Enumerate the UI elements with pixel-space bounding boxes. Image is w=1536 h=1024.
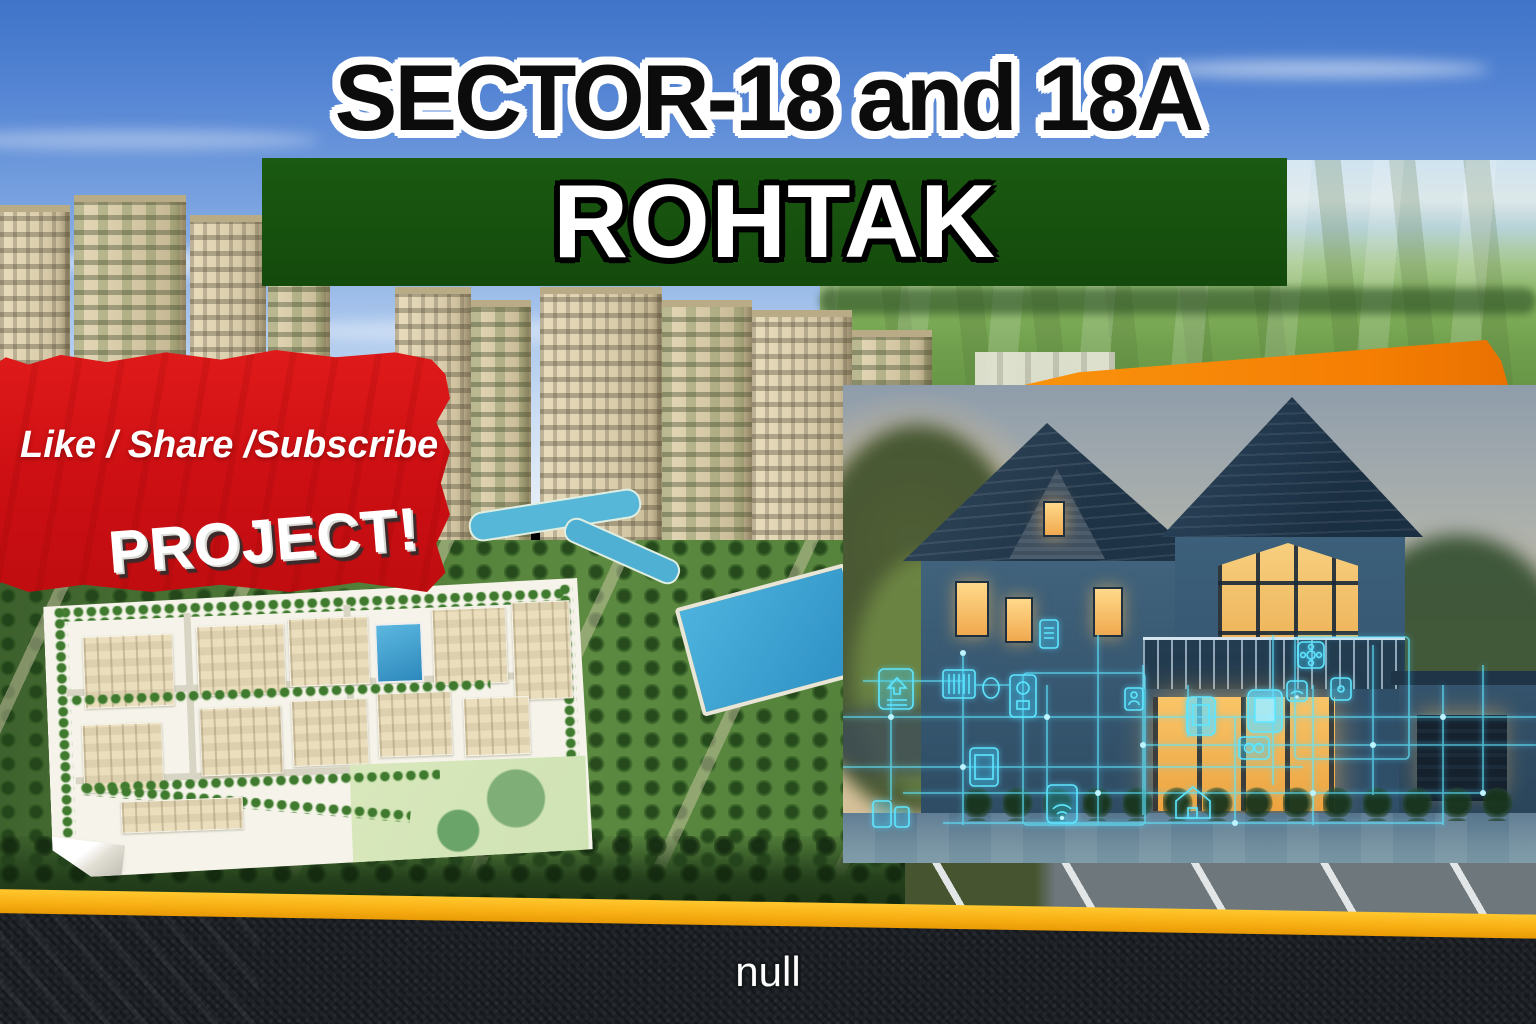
- fan-icon: [1298, 642, 1324, 668]
- energy-meter-icon: [873, 801, 909, 827]
- plan-building-cluster: [432, 607, 509, 686]
- site-plan-map: [43, 578, 593, 879]
- plan-tree-row: [53, 608, 76, 838]
- circuit-nodes: [888, 650, 1486, 826]
- plan-building-cluster: [288, 616, 371, 687]
- iot-overlay: [843, 385, 1536, 863]
- caption-text: null: [0, 948, 1536, 996]
- wall-meter-icon: [1040, 620, 1058, 648]
- plan-cottages-row: [121, 797, 244, 834]
- plan-pool: [374, 622, 424, 684]
- infinity-icon: [1239, 737, 1269, 759]
- smart-house-icon: [1176, 787, 1210, 818]
- wifi-icon: [1047, 785, 1077, 823]
- circle-sensor-icon: [983, 678, 999, 698]
- upload-panel-icon: [879, 669, 913, 709]
- wifi-icon: [1331, 678, 1351, 700]
- app-window-icon: [1187, 697, 1215, 735]
- control-panel-icon: [1010, 675, 1036, 717]
- person-badge-icon: [1125, 688, 1143, 710]
- cta-text: Like / Share /Subscribe: [20, 424, 450, 467]
- tablet-icon: [970, 748, 998, 786]
- smart-home-photo: [843, 385, 1536, 863]
- location-text: ROHTAK: [553, 170, 996, 274]
- plan-building-cluster: [463, 696, 531, 756]
- plan-building-cluster: [377, 691, 453, 758]
- plan-building-cluster: [511, 600, 573, 700]
- monitor-icon: [1248, 690, 1282, 732]
- distant-treeline: [820, 288, 1536, 314]
- wifi-signal-icon: [1287, 681, 1307, 701]
- window-blinds-icon: [943, 670, 975, 698]
- plan-building-cluster: [199, 705, 284, 776]
- plan-building-cluster: [196, 623, 287, 696]
- plan-building-cluster: [291, 698, 369, 767]
- location-banner: ROHTAK: [262, 158, 1287, 286]
- thumbnail-canvas: ROHTAK SECTOR-18 and 18A Like / Share /S…: [0, 0, 1536, 1024]
- title-text: SECTOR-18 and 18A: [0, 44, 1536, 152]
